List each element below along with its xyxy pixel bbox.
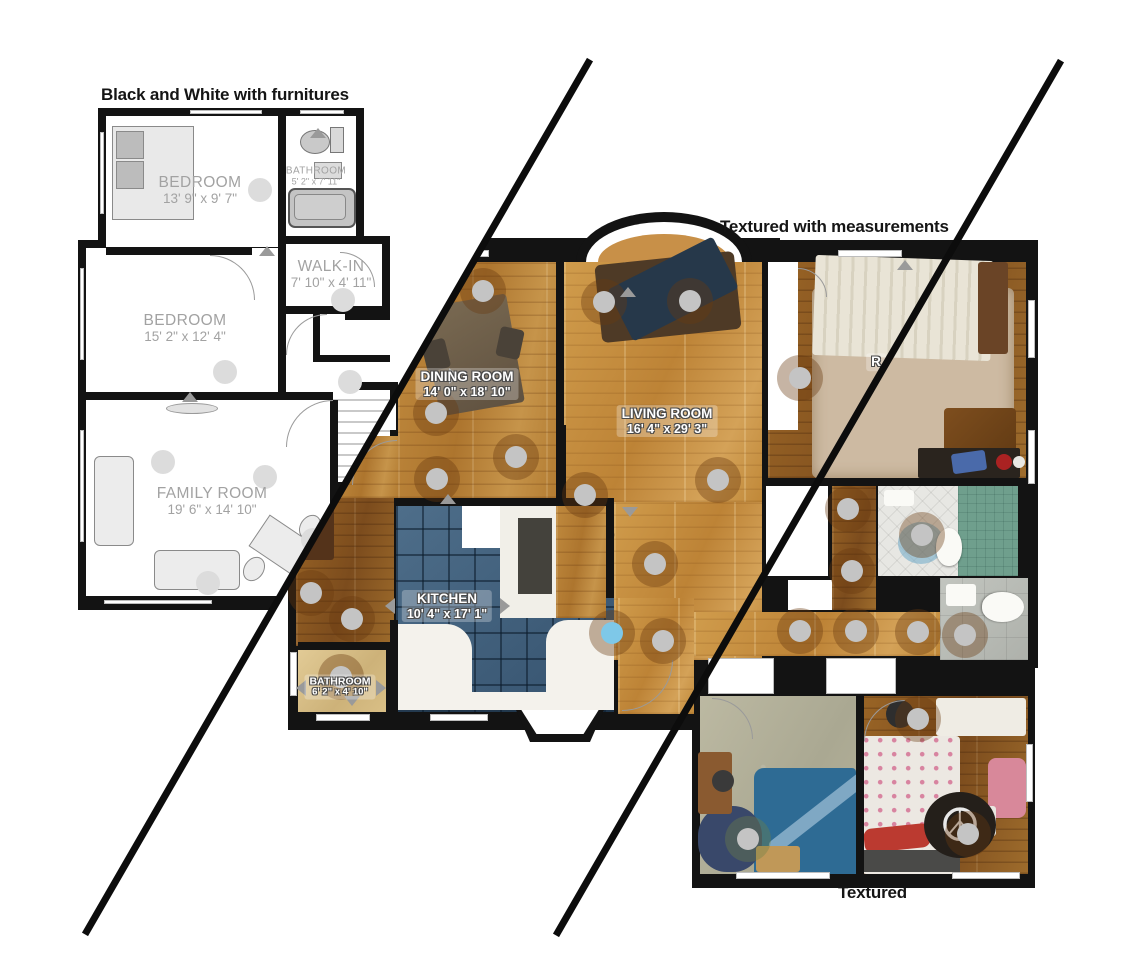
section-title-bw: Black and White with furnitures [101, 85, 349, 105]
room-name: BATHROOM [286, 165, 346, 176]
section-title-textured: Textured [838, 883, 907, 903]
label-arrow-icon [376, 680, 386, 696]
label-arrow-icon [500, 598, 510, 614]
room-label-kitchen: KITCHEN 10' 4" x 17' 1" [402, 590, 492, 622]
floorplan-comparison-image: ☮ [0, 0, 1125, 973]
room-name: WALK-IN [291, 258, 372, 275]
room-name: LIVING ROOM [622, 406, 713, 422]
room-dims: 5' 2" x 7' 11" [286, 177, 346, 187]
room-name: KITCHEN [407, 591, 487, 607]
room-name: FAMILY ROOM [157, 485, 268, 502]
room-dims: 13' 9" x 9' 7" [159, 191, 242, 206]
room-label-bathroom1: BATHROOM 5' 2" x 7' 11" [286, 165, 346, 186]
room-dims: 15' 2" x 12' 4" [144, 329, 227, 344]
room-dims: 7' 10" x 4' 11" [291, 275, 372, 290]
room-name: DINING ROOM [421, 369, 514, 385]
room-label-bedroom1: BEDROOM 13' 9" x 9' 7" [159, 174, 242, 206]
room-dims: 16' 4" x 29' 3" [622, 422, 713, 436]
room-label-familyroom: FAMILY ROOM 19' 6" x 14' 10" [157, 485, 268, 517]
room-dims: 10' 4" x 17' 1" [407, 607, 487, 621]
room-label-bedroom2: BEDROOM 15' 2" x 12' 4" [144, 312, 227, 344]
room-dims: 19' 6" x 14' 10" [157, 502, 268, 517]
room-label-livingroom: LIVING ROOM 16' 4" x 29' 3" [617, 405, 718, 437]
room-labels-overlay: BEDROOM 13' 9" x 9' 7" BATHROOM 5' 2" x … [0, 0, 1125, 973]
room-label-diningroom: DINING ROOM 14' 0" x 18' 10" [416, 368, 519, 400]
room-label-walkin: WALK-IN 7' 10" x 4' 11" [291, 258, 372, 290]
room-dims: 6' 2" x 4' 10" [309, 688, 370, 699]
label-arrow-icon [385, 598, 395, 614]
room-label-bathroom2: BATHROOM 6' 2" x 4' 10" [304, 675, 375, 700]
room-name: BEDROOM [144, 312, 227, 329]
room-dims: 14' 0" x 18' 10" [421, 385, 514, 399]
section-title-textured-measurements: Textured with measurements [720, 217, 949, 237]
room-name: BEDROOM [159, 174, 242, 191]
